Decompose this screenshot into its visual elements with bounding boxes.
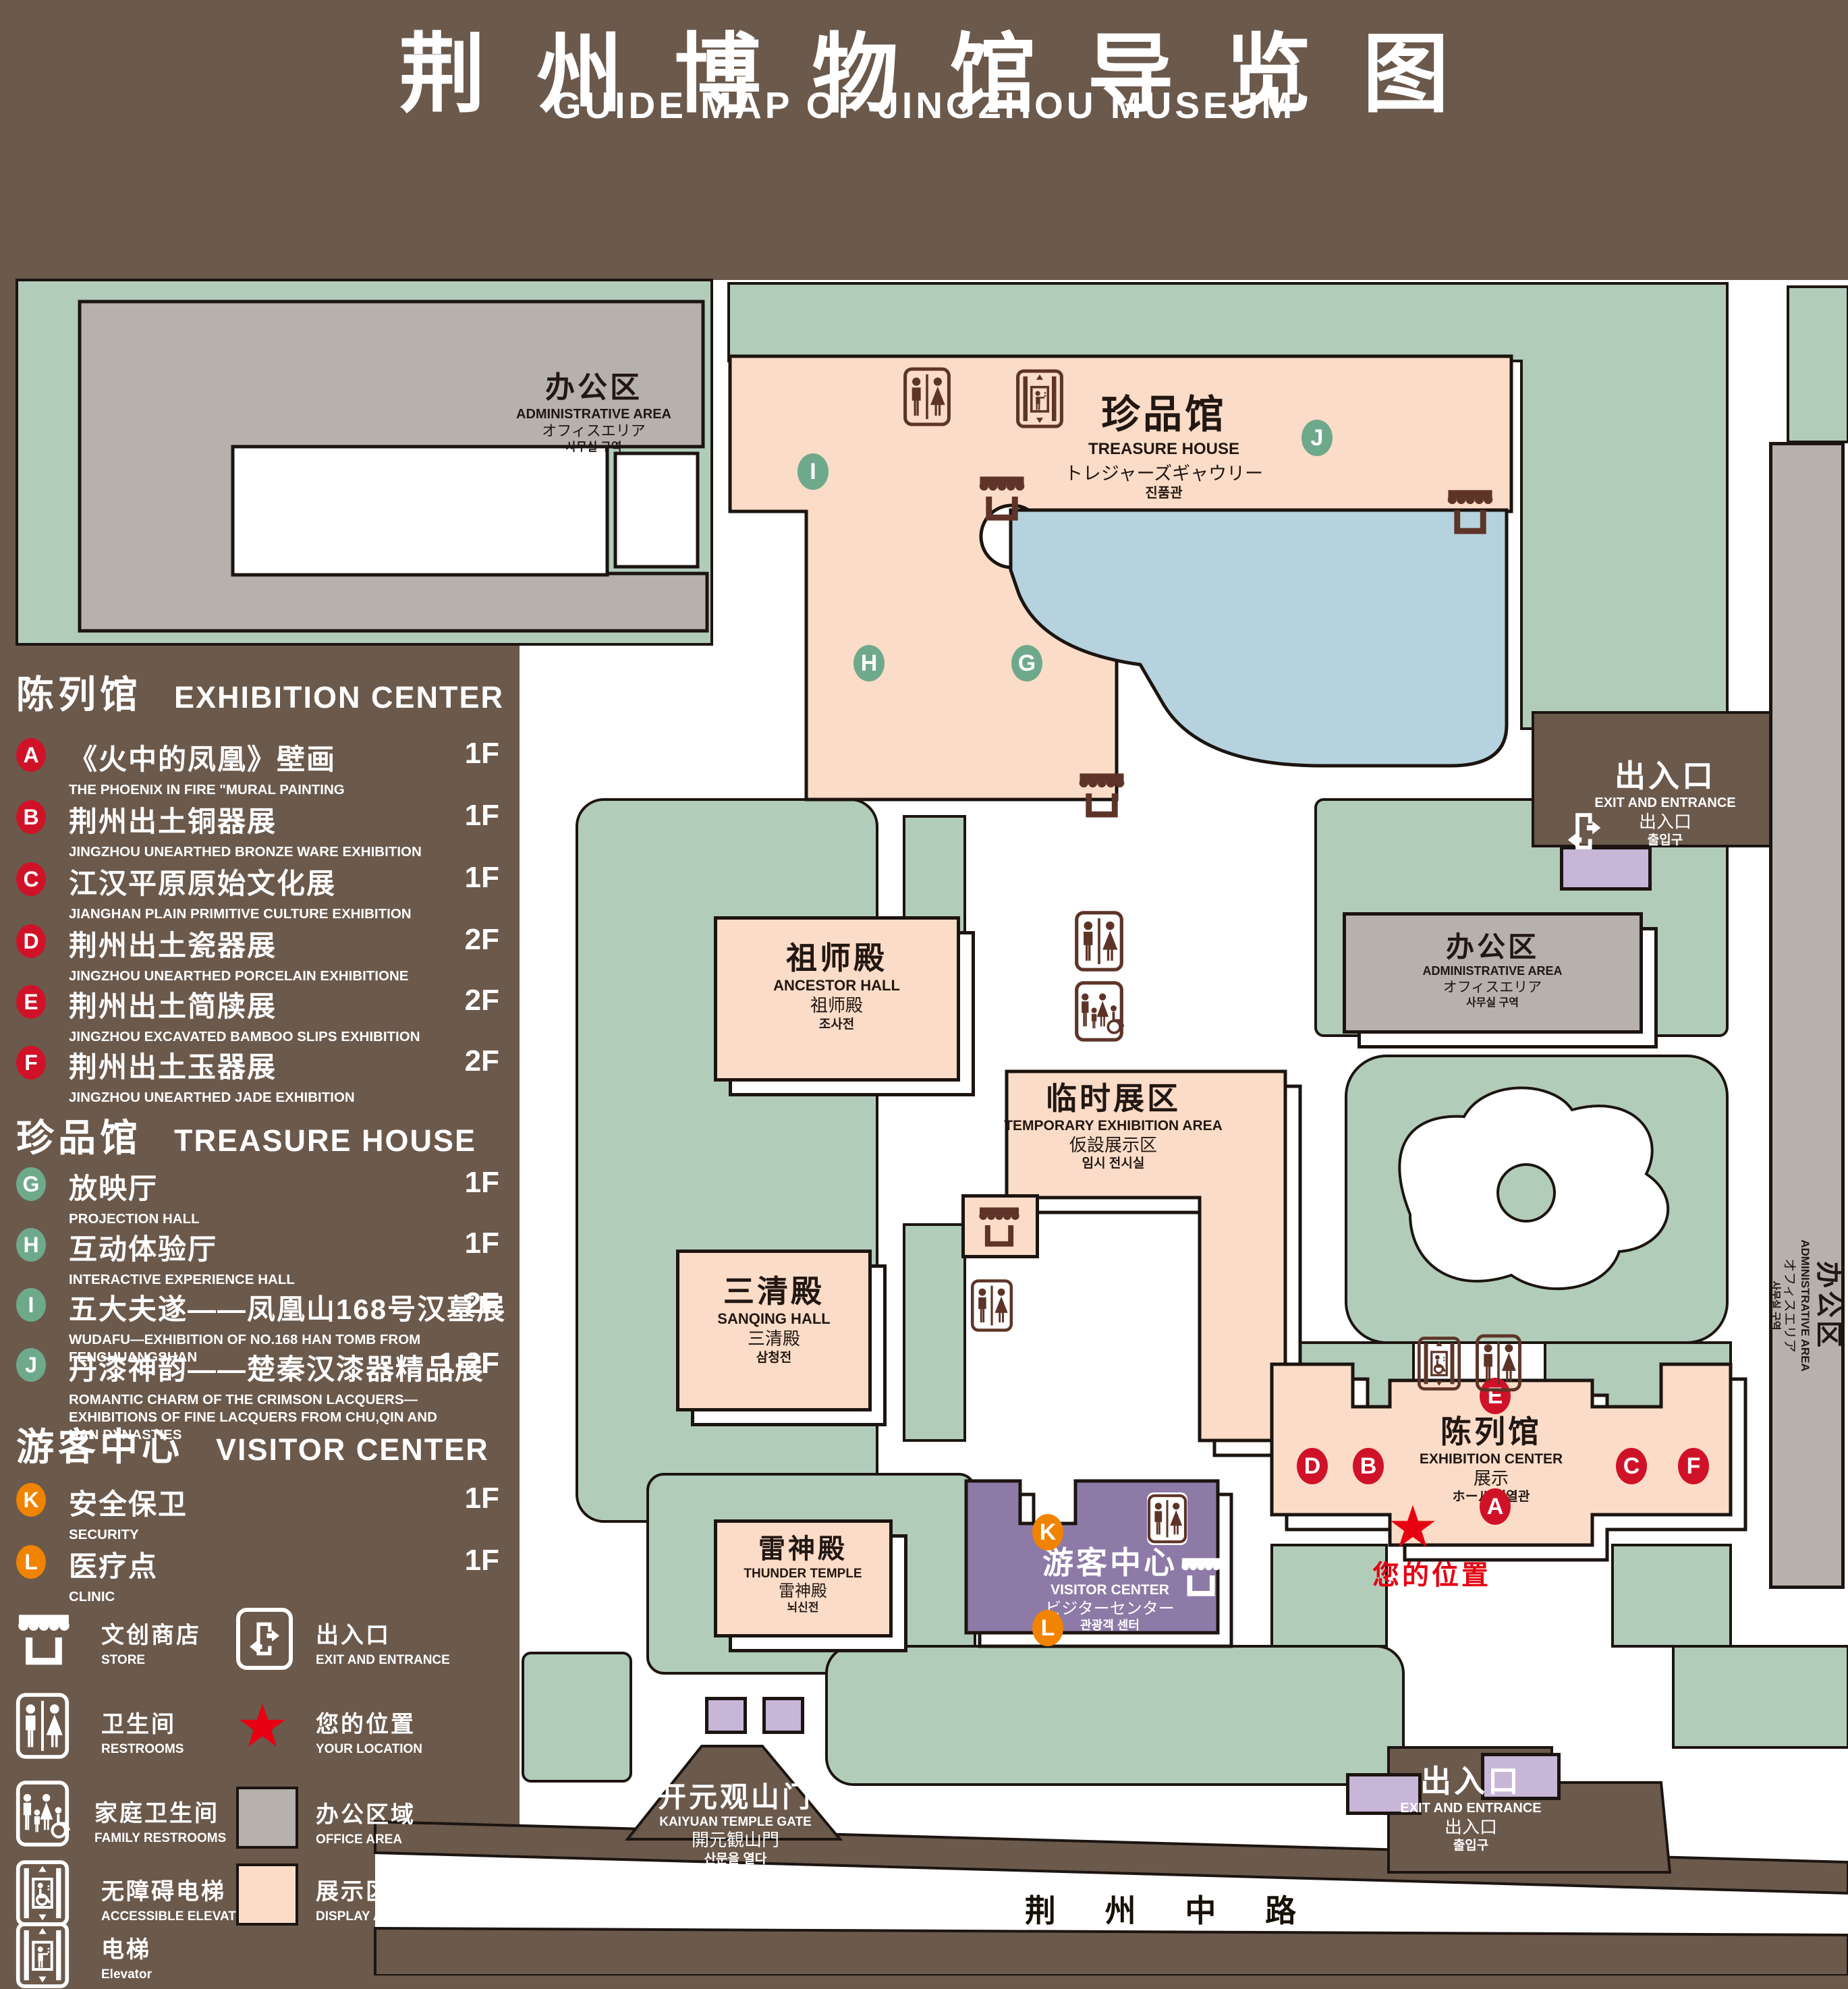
family-restroom-icon — [1074, 980, 1124, 1043]
your-location-label: 您的位置 — [1372, 1553, 1491, 1592]
legend-accessible-elevator: 无障碍电梯 ACCESSIBLE ELEVATOR — [101, 1873, 255, 1924]
store-icon — [1179, 1553, 1223, 1598]
map-badge-L: L — [1032, 1610, 1063, 1646]
road-label: 荆 州 中 路 — [1025, 1886, 1316, 1931]
list-item-L: L 医疗点 CLINIC 1F — [16, 1544, 499, 1606]
office-area-swatch — [236, 1787, 298, 1849]
map-badge-G: G — [1011, 645, 1042, 681]
map-badge-D: D — [1297, 1448, 1328, 1484]
legend-elevator: 电梯 Elevator — [101, 1931, 152, 1982]
store-icon — [977, 1202, 1021, 1248]
list-item-G: G 放映厅 PROJECTION HALL 1F — [16, 1166, 499, 1228]
restroom-icon — [1074, 909, 1124, 973]
elevator-icon — [1015, 368, 1064, 430]
legend-restrooms: 卫生间 RESTROOMS — [101, 1706, 184, 1757]
elevator-icon — [15, 1922, 70, 1989]
location-star-icon — [237, 1702, 287, 1750]
map-badge-I: I — [797, 453, 829, 490]
list-item-D: D 荆州出土瓷器展 JINGZHOU UNEARTHED PORCELAIN E… — [16, 923, 499, 985]
list-item-B: B 荆州出土铜器展 JINGZHOU UNEARTHED BRONZE WARE… — [16, 799, 499, 861]
list-item-A: A 《火中的凤凰》壁画 THE PHOENIX IN FIRE "MURAL P… — [16, 737, 499, 799]
admin-right-strip — [1769, 442, 1845, 1589]
legend-display-area: 展示区域 DISPLAY AREA — [316, 1873, 416, 1924]
gate-building — [705, 1697, 747, 1734]
family-restroom-icon — [15, 1780, 70, 1847]
map-badge-C: C — [1616, 1448, 1647, 1484]
display-area-swatch — [236, 1864, 298, 1926]
kaiyuan-gate-label: 开元观山门 KAIYUAN TEMPLE GATE 開元観山門 산문을 열다 — [658, 1780, 813, 1867]
store-icon — [15, 1609, 73, 1666]
restroom-icon — [1475, 1333, 1522, 1393]
list-item-E: E 荆州出土简牍展 JINGZHOU EXCAVATED BAMBOO SLIP… — [16, 984, 499, 1046]
map-badge-H: H — [853, 645, 885, 681]
admin-mid-label: 办公区 ADMINISTRATIVE AREA オフィスエリア 사무실 구역 — [1423, 930, 1563, 1009]
thunder-temple-label: 雷神殿 THUNDER TEMPLE 雷神殿 뇌신전 — [744, 1533, 862, 1615]
accessible-elevator-icon — [1417, 1335, 1461, 1393]
legend-office-area: 办公区域 OFFICE AREA — [316, 1796, 416, 1847]
gate-building — [762, 1697, 804, 1734]
ancestor-hall-label: 祖师殿 ANCESTOR HALL 祖师殿 조사전 — [773, 939, 900, 1032]
store-icon — [977, 471, 1027, 522]
legend-exit: 出入口 EXIT AND ENTRANCE — [316, 1617, 450, 1668]
exit-bottom-label: 出入口 EXIT AND ENTRANCE 出入口 출입구 — [1400, 1762, 1541, 1853]
exit-top-label: 出入口 EXIT AND ENTRANCE 出入口 출입구 — [1594, 757, 1735, 848]
restroom-icon — [903, 366, 951, 428]
restroom-icon — [970, 1277, 1013, 1334]
sanqing-hall-label: 三清殿 SANQING HALL 三清殿 삼청전 — [717, 1272, 830, 1366]
store-icon — [1445, 484, 1495, 536]
restroom-icon — [15, 1692, 70, 1760]
admin-right-label: 办公区 ADMINISTRATIVE AREA オフィスエリア 사무실 구역 — [1769, 1239, 1845, 1372]
map-badge-F: F — [1678, 1448, 1709, 1484]
section-header-visitor-center: 游客中心 VISITOR CENTER — [16, 1417, 489, 1472]
store-icon — [1077, 768, 1127, 819]
legend-your-location: 您的位置 YOUR LOCATION — [316, 1706, 422, 1757]
location-star-icon — [1389, 1503, 1437, 1550]
list-item-C: C 江汉平原原始文化展 JIANGHAN PLAIN PRIMITIVE CUL… — [16, 861, 499, 923]
section-header-exhibition-center: 陈列馆 EXHIBITION CENTER — [16, 665, 504, 719]
map-badge-A: A — [1480, 1488, 1511, 1525]
restroom-icon — [1147, 1492, 1187, 1545]
exit-icon — [236, 1608, 293, 1670]
legend-store: 文创商店 STORE — [101, 1617, 201, 1668]
list-item-K: K 安全保卫 SECURITY 1F — [16, 1482, 499, 1544]
visitor-center-label: 游客中心 VISITOR CENTER ビジターセンター 관광객 센터 — [1042, 1544, 1177, 1633]
map-badge-B: B — [1353, 1448, 1384, 1484]
list-item-F: F 荆州出土玉器展 JINGZHOU UNEARTHED JADE EXHIBI… — [16, 1044, 499, 1106]
temporary-exhibition-label: 临时展区 TEMPORARY EXHIBITION AREA 仮設展示区 임시 … — [1004, 1080, 1223, 1172]
treasure-house-label: 珍品馆 TREASURE HOUSE トレジャーズギャウリー 진품관 — [1065, 391, 1263, 501]
accessible-elevator-icon — [15, 1859, 70, 1927]
map-badge-J: J — [1301, 420, 1333, 456]
list-item-H: H 互动体验厅 INTERACTIVE EXPERIENCE HALL 1F — [16, 1227, 499, 1289]
map-badge-K: K — [1032, 1514, 1063, 1550]
section-header-treasure-house: 珍品馆 TREASURE HOUSE — [16, 1108, 476, 1162]
legend-family-restrooms: 家庭卫生间 FAMILY RESTROOMS — [94, 1795, 226, 1846]
exit-icon — [1563, 807, 1606, 856]
admin-top-label: 办公区 ADMINISTRATIVE AREA オフィスエリア 사무실 구역 — [516, 370, 671, 455]
